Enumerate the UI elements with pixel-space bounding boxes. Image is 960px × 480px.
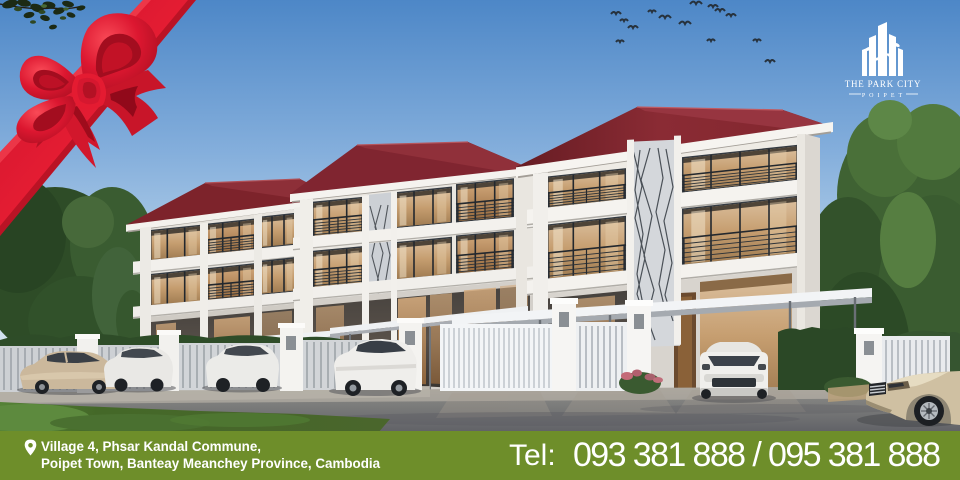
svg-text:093 381 888 / 095 381 888: 093 381 888 / 095 381 888 [573, 436, 940, 474]
svg-text:Village 4, Phsar Kandal Commun: Village 4, Phsar Kandal Commune, [41, 439, 261, 454]
svg-text:THE PARK CITY: THE PARK CITY [845, 79, 922, 89]
svg-text:POIPET: POIPET [862, 93, 906, 99]
svg-text:Poipet Town, Banteay Meanchey: Poipet Town, Banteay Meanchey Province, … [41, 456, 381, 471]
svg-text:Tel:: Tel: [509, 439, 556, 472]
